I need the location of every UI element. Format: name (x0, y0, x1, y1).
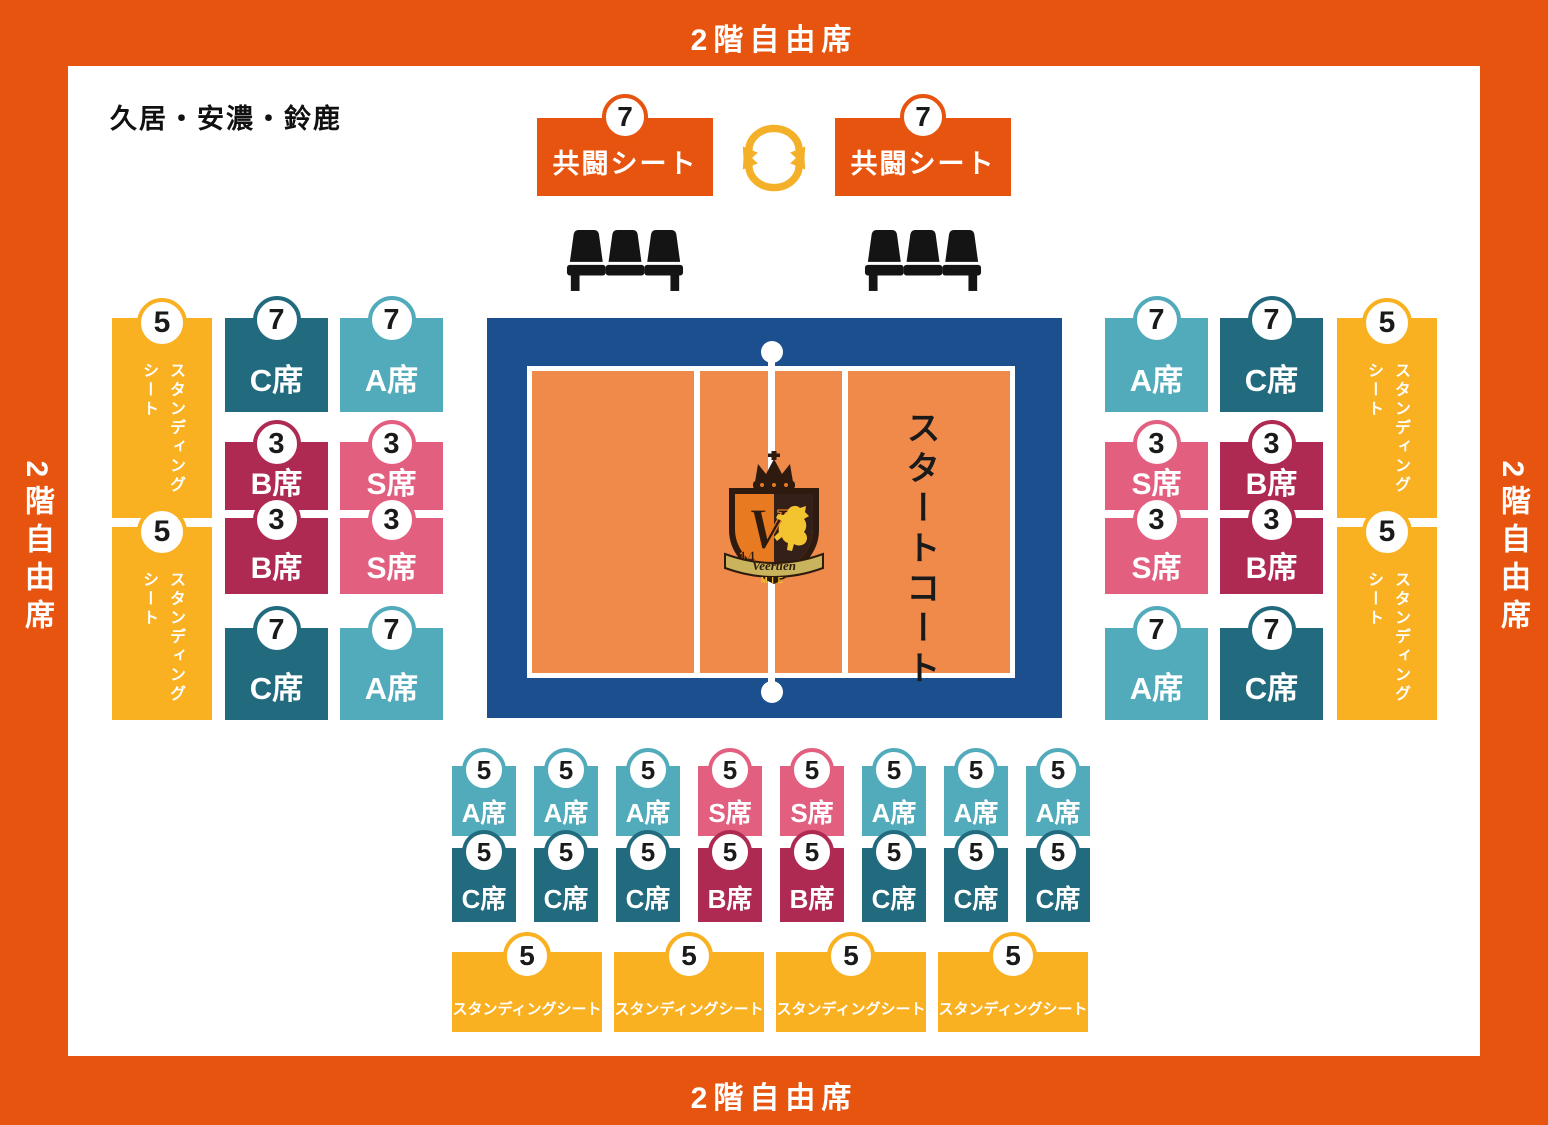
seat-label: A席 (616, 793, 680, 830)
seat-label: C席 (1220, 355, 1323, 400)
capacity-badge: 5 (626, 748, 670, 792)
capacity-badge: 5 (790, 748, 834, 792)
capacity-badge: 3 (1133, 496, 1181, 544)
capacity-badge: 5 (1362, 507, 1412, 557)
capacity-badge: 5 (989, 932, 1037, 980)
seat-block-s: 3S席 (1105, 518, 1208, 594)
seat-block-a: 7A席 (1105, 628, 1208, 720)
seat-label: スタンディングシート (776, 998, 926, 1019)
capacity-badge: 7 (602, 94, 648, 140)
seat-block-s: 5S席 (698, 766, 762, 836)
seat-block-s: 5S席 (780, 766, 844, 836)
seat-label: スタンディングシート (614, 998, 764, 1019)
seat-block-a: 5A席 (944, 766, 1008, 836)
capacity-badge: 3 (253, 420, 301, 468)
seat-label: B席 (1220, 543, 1323, 587)
seat-block-c: 5C席 (1026, 848, 1090, 922)
seat-block-c: 7C席 (225, 318, 328, 412)
seat-label: S席 (340, 543, 443, 587)
seat-block-b: 5B席 (698, 848, 762, 922)
capacity-badge: 5 (462, 748, 506, 792)
seat-label: A席 (862, 793, 926, 830)
seat-block-a: 5A席 (1026, 766, 1090, 836)
capacity-badge: 5 (544, 830, 588, 874)
seat-label: A席 (340, 355, 443, 400)
capacity-badge: 3 (1248, 496, 1296, 544)
net-post-dot-bottom (761, 681, 783, 703)
seat-label: A席 (1105, 355, 1208, 400)
standing-seat-block: 5スタンディングシート (1337, 318, 1437, 518)
seat-block-a: 7A席 (340, 318, 443, 412)
arena-seating-chart: 2階自由席 2階自由席 2階自由席 2階自由席 久居・安濃・鈴鹿 7 共闘シート… (0, 0, 1548, 1125)
capacity-badge: 5 (827, 932, 875, 980)
standing-seat-block: 5スタンディングシート (1337, 527, 1437, 720)
capacity-badge: 7 (253, 296, 301, 344)
seat-label: C席 (225, 663, 328, 708)
standing-seat-label: スタンディングシート (1360, 571, 1414, 707)
capacity-badge: 7 (1248, 296, 1296, 344)
standing-seat-block: 5スタンディングシート (938, 952, 1088, 1032)
seat-block-c: 7C席 (1220, 628, 1323, 720)
seat-label: C席 (862, 879, 926, 916)
seat-block-c: 7C席 (1220, 318, 1323, 412)
seat-label: S席 (1105, 543, 1208, 587)
standing-seat-block: 5スタンディングシート (112, 527, 212, 720)
seat-block-s: 3S席 (340, 518, 443, 594)
capacity-badge: 5 (137, 507, 187, 557)
veertien-crest-logo: V 14 Veertien MIE (715, 450, 833, 592)
capacity-badge: 3 (1248, 420, 1296, 468)
seat-block-a: 5A席 (452, 766, 516, 836)
seat-label: A席 (534, 793, 598, 830)
seat-block-a: 5A席 (534, 766, 598, 836)
seat-label: C席 (1026, 879, 1090, 916)
seat-block-a: 5A席 (616, 766, 680, 836)
capacity-badge: 3 (368, 496, 416, 544)
capacity-badge: 3 (1133, 420, 1181, 468)
seat-label: 共闘シート (835, 142, 1011, 181)
capacity-badge: 5 (954, 748, 998, 792)
standing-seat-label: スタンディングシート (135, 362, 189, 498)
seat-block-c: 5C席 (862, 848, 926, 922)
seat-label: 共闘シート (537, 142, 713, 181)
capacity-badge: 7 (900, 94, 946, 140)
capacity-badge: 5 (503, 932, 551, 980)
standing-seat-label: スタンディングシート (135, 571, 189, 707)
seat-label: B席 (225, 543, 328, 587)
seat-block-b: 3B席 (1220, 518, 1323, 594)
seat-label: A席 (452, 793, 516, 830)
start-court-label: スタートコート (901, 410, 945, 690)
seat-label: A席 (1026, 793, 1090, 830)
seat-block-a: 7A席 (340, 628, 443, 720)
standing-seat-block: 5スタンディングシート (614, 952, 764, 1032)
capacity-badge: 3 (368, 420, 416, 468)
seat-label: S席 (698, 793, 762, 830)
capacity-badge: 7 (368, 296, 416, 344)
seat-block-c: 5C席 (534, 848, 598, 922)
capacity-badge: 7 (368, 606, 416, 654)
capacity-badge: 5 (1036, 748, 1080, 792)
logo-team-name: Veertien (752, 558, 796, 573)
seat-label: A席 (1105, 663, 1208, 708)
standing-seat-label: スタンディングシート (1360, 362, 1414, 498)
standing-seat-block: 5スタンディングシート (112, 318, 212, 518)
seat-block-a: 5A席 (862, 766, 926, 836)
seat-block-c: 5C席 (944, 848, 1008, 922)
seat-block-b: 5B席 (780, 848, 844, 922)
capacity-badge: 5 (790, 830, 834, 874)
capacity-badge: 5 (872, 830, 916, 874)
capacity-badge: 5 (1362, 298, 1412, 348)
capacity-badge: 5 (137, 298, 187, 348)
seat-label: A席 (340, 663, 443, 708)
seat-block-c: 5C席 (616, 848, 680, 922)
seat-label: B席 (698, 879, 762, 916)
capacity-badge: 7 (1133, 296, 1181, 344)
capacity-badge: 5 (954, 830, 998, 874)
seat-label: A席 (944, 793, 1008, 830)
seat-label: B席 (780, 879, 844, 916)
standing-seat-block: 5スタンディングシート (452, 952, 602, 1032)
seat-block-a: 7A席 (1105, 318, 1208, 412)
capacity-badge: 5 (462, 830, 506, 874)
capacity-badge: 5 (872, 748, 916, 792)
seat-label: C席 (1220, 663, 1323, 708)
capacity-badge: 5 (708, 748, 752, 792)
seat-label: C席 (616, 879, 680, 916)
seat-block-b: 3B席 (225, 518, 328, 594)
capacity-badge: 5 (1036, 830, 1080, 874)
capacity-badge: 5 (708, 830, 752, 874)
seat-label: C席 (534, 879, 598, 916)
standing-seat-block: 5スタンディングシート (776, 952, 926, 1032)
seat-block-c: 7C席 (225, 628, 328, 720)
seat-label: スタンディングシート (452, 998, 602, 1019)
capacity-badge: 5 (544, 748, 588, 792)
seat-label: C席 (452, 879, 516, 916)
seat-label: S席 (780, 793, 844, 830)
net-post-dot-top (761, 341, 783, 363)
capacity-badge: 7 (1133, 606, 1181, 654)
seat-label: C席 (225, 355, 328, 400)
seat-label: スタンディングシート (938, 998, 1088, 1019)
capacity-badge: 3 (253, 496, 301, 544)
seat-block-c: 5C席 (452, 848, 516, 922)
capacity-badge: 5 (665, 932, 713, 980)
capacity-badge: 5 (626, 830, 670, 874)
seat-label: C席 (944, 879, 1008, 916)
logo-region: MIE (761, 576, 787, 585)
capacity-badge: 7 (253, 606, 301, 654)
capacity-badge: 7 (1248, 606, 1296, 654)
